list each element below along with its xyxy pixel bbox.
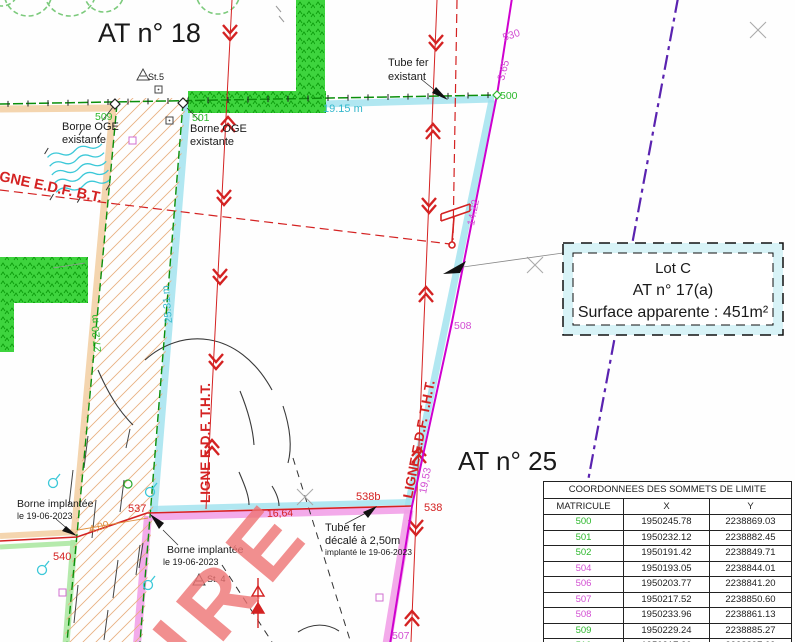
svg-text:décalé à 2,50m: décalé à 2,50m bbox=[325, 535, 400, 547]
svg-text:existante: existante bbox=[62, 134, 106, 146]
table-row: 5081950233.962238861.13 bbox=[544, 608, 792, 624]
edf-chevron-icon bbox=[419, 287, 433, 302]
edf-chevron-icon bbox=[426, 124, 440, 139]
svg-text:existant: existant bbox=[388, 71, 426, 83]
measure-19-15: 19.15 m bbox=[323, 103, 363, 115]
lot-box-line1: Lot C bbox=[655, 260, 691, 277]
svg-text:le 19-06-2023: le 19-06-2023 bbox=[17, 511, 73, 521]
table-row: 5041950193.052238844.01 bbox=[544, 561, 792, 577]
label-at25: AT n° 25 bbox=[458, 446, 557, 476]
label-borne-implantee: Borne implantée bbox=[17, 498, 94, 510]
leader-lines bbox=[56, 79, 437, 545]
point-508: 508 bbox=[454, 320, 472, 332]
label-tube-fer: Tube fer bbox=[388, 57, 429, 69]
column-header-x: X bbox=[624, 499, 710, 515]
point-500: 500 bbox=[500, 90, 518, 102]
table-row: 5071950217.522238850.60 bbox=[544, 592, 792, 608]
table-row: 5101950217.202238897.09 bbox=[544, 639, 792, 642]
column-header-matricule: MATRICULE bbox=[544, 499, 624, 515]
column-header-y: Y bbox=[710, 499, 792, 515]
survey-plan: AT n° 18 AT n° 25 LIGNE E.D.F. B.T. LIGN… bbox=[0, 0, 795, 642]
table-row: 5091950229.242238885.27 bbox=[544, 623, 792, 639]
table-row: 5001950245.782238869.03 bbox=[544, 515, 792, 531]
point-538b: 538b bbox=[356, 491, 380, 503]
label-at18: AT n° 18 bbox=[98, 18, 201, 48]
edf-chevron-icon bbox=[429, 35, 443, 50]
survey-square-icon bbox=[155, 86, 173, 124]
measure-27-20: 27.20 m bbox=[89, 314, 104, 353]
lot-box-leader bbox=[463, 253, 563, 267]
svg-text:implanté le 19-06-2023: implanté le 19-06-2023 bbox=[325, 547, 412, 557]
table-row: 5011950232.122238882.45 bbox=[544, 530, 792, 546]
borne-diamond-icon bbox=[110, 98, 188, 109]
table-body: 5001950245.782238869.035011950232.122238… bbox=[544, 515, 792, 642]
label-tube-decale: Tube fer bbox=[325, 522, 366, 534]
tree-icon bbox=[0, 0, 240, 16]
label-borne-oge: Borne OGE bbox=[190, 123, 247, 135]
edf-chevron-icon bbox=[209, 354, 223, 369]
label-ligne-tht: LIGNE E.D.F. T.H.T. bbox=[198, 383, 213, 503]
table-row: 5021950191.422238849.71 bbox=[544, 546, 792, 562]
coordinates-table: COORDONNEES DES SOMMETS DE LIMITE MATRIC… bbox=[543, 481, 792, 642]
point-507: 507 bbox=[392, 630, 410, 642]
lot-info-box: Lot C AT n° 17(a) Surface apparente : 45… bbox=[563, 243, 783, 335]
point-540: 540 bbox=[53, 551, 71, 563]
lot-box-line2: AT n° 17(a) bbox=[633, 282, 714, 299]
point-530: 530 bbox=[501, 27, 522, 44]
lot-box-line3: Surface apparente : 451m² bbox=[578, 304, 769, 321]
point-538: 538 bbox=[424, 502, 442, 514]
point-501: 501 bbox=[192, 112, 210, 124]
measure-4-00: 4,00 bbox=[88, 519, 111, 536]
table-row: 5061950203.772238841.20 bbox=[544, 577, 792, 593]
point-509: 509 bbox=[95, 111, 113, 123]
table-title: COORDONNEES DES SOMMETS DE LIMITE bbox=[544, 482, 792, 499]
edf-chevron-icon bbox=[213, 269, 227, 284]
measure-3-65: 3.65 bbox=[495, 59, 512, 82]
shrub-icon bbox=[124, 480, 132, 488]
svg-text:existante: existante bbox=[190, 136, 234, 148]
point-537: 537 bbox=[128, 503, 146, 515]
edf-chevron-icon bbox=[217, 190, 231, 205]
label-st5: St.5 bbox=[148, 72, 164, 82]
